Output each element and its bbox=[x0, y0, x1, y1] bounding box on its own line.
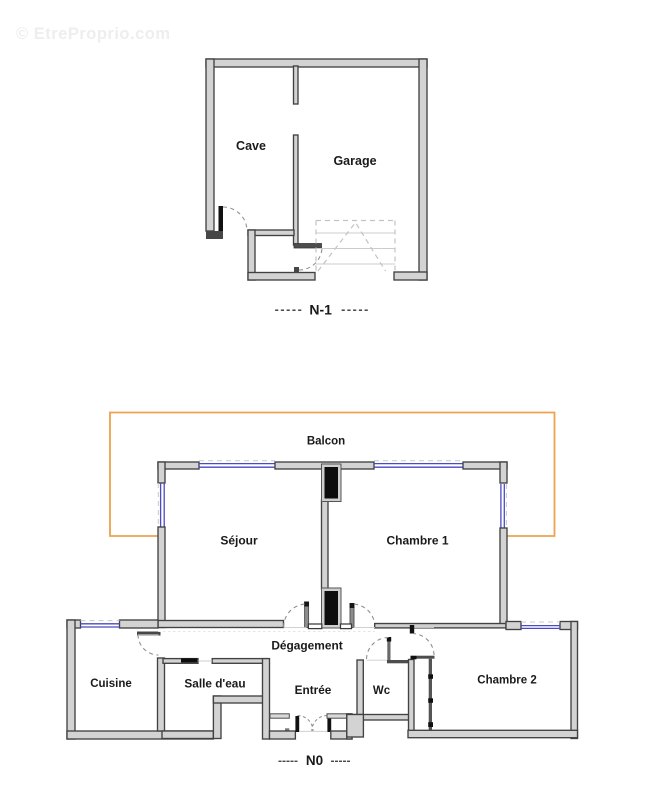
svg-text:Séjour: Séjour bbox=[220, 534, 258, 548]
svg-text:Garage: Garage bbox=[333, 154, 376, 168]
svg-text:Entrée: Entrée bbox=[295, 683, 332, 697]
svg-text:N-1: N-1 bbox=[309, 302, 332, 318]
svg-text:Wc: Wc bbox=[373, 685, 391, 697]
svg-text:-----: ----- bbox=[275, 303, 304, 317]
svg-text:-----: ----- bbox=[341, 303, 370, 317]
svg-text:Chambre 2: Chambre 2 bbox=[477, 675, 536, 687]
svg-text:N0: N0 bbox=[306, 753, 323, 768]
svg-text:Chambre 1: Chambre 1 bbox=[386, 534, 448, 548]
svg-text:© EtreProprio.com: © EtreProprio.com bbox=[16, 25, 171, 43]
svg-text:Dégagement: Dégagement bbox=[271, 639, 342, 653]
svg-text:Salle d'eau: Salle d'eau bbox=[184, 677, 245, 691]
svg-text:-----: ----- bbox=[331, 754, 351, 768]
svg-text:Cave: Cave bbox=[236, 139, 266, 153]
svg-text:-----: ----- bbox=[278, 754, 298, 768]
svg-text:Balcon: Balcon bbox=[307, 436, 345, 448]
svg-text:Cuisine: Cuisine bbox=[90, 678, 132, 690]
